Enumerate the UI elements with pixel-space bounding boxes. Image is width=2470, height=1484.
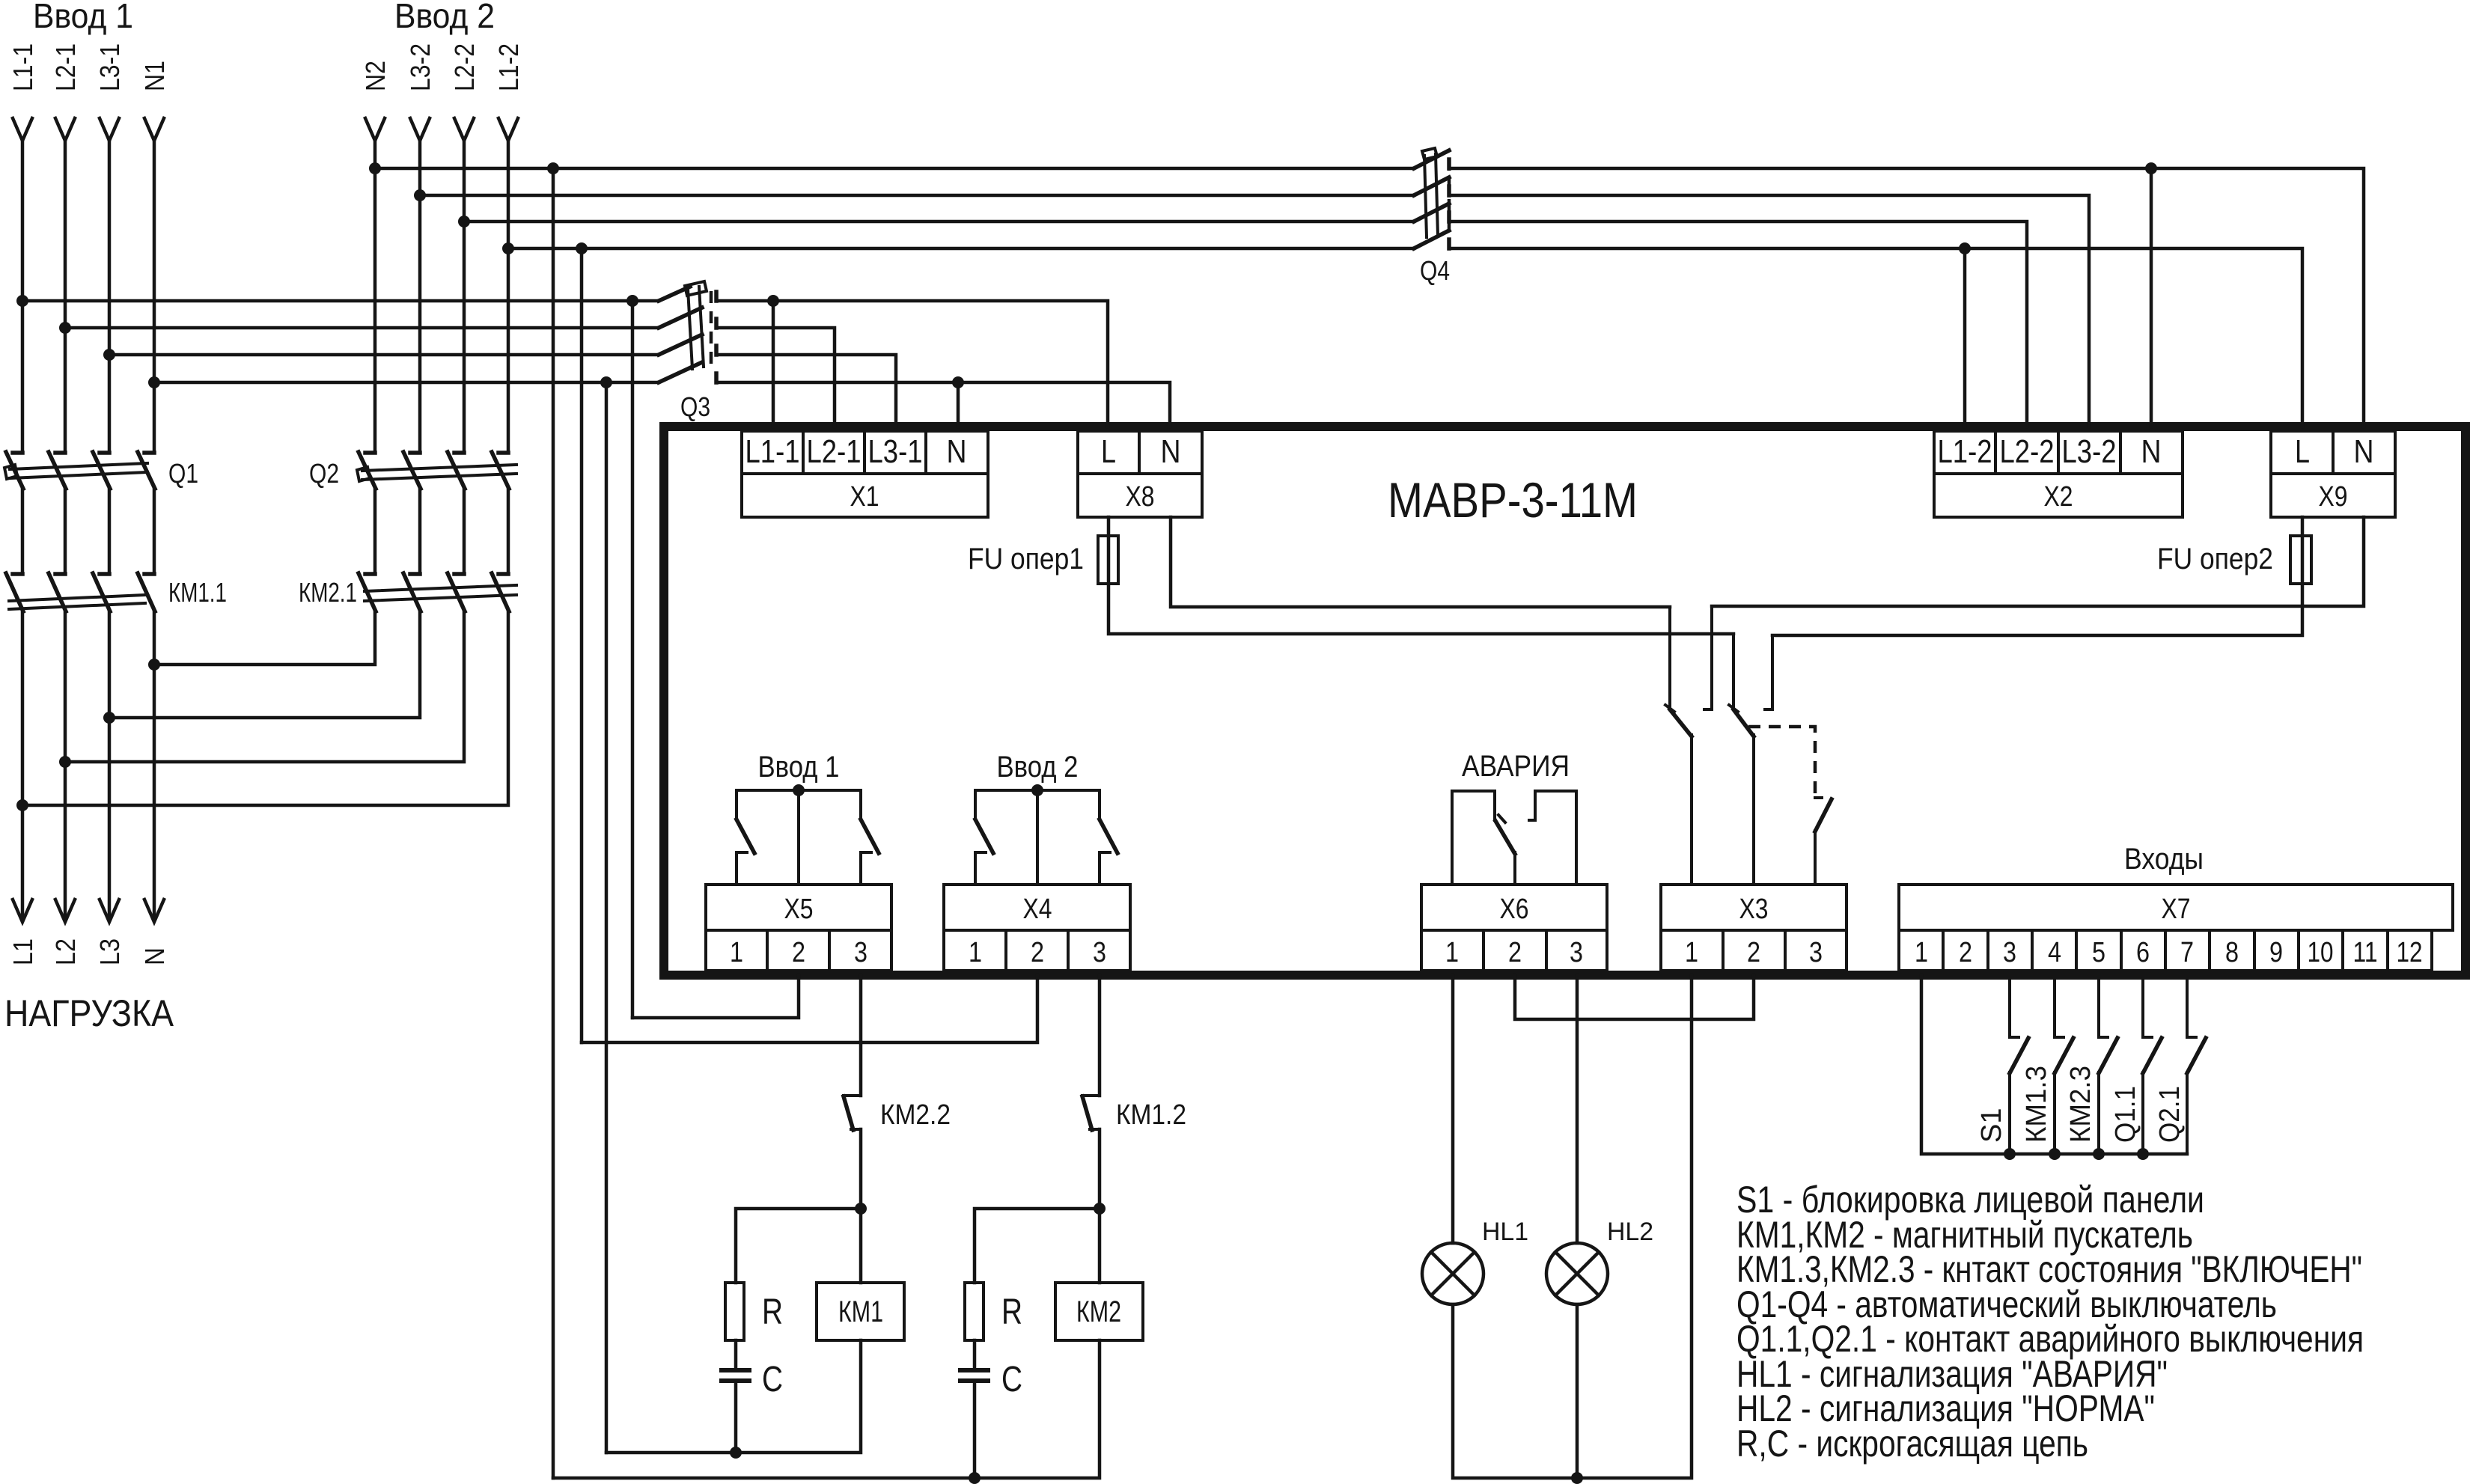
svg-text:1: 1 [1445, 937, 1459, 968]
svg-text:КМ1.3: КМ1.3 [2021, 1066, 2052, 1143]
svg-text:Q2: Q2 [309, 458, 339, 489]
svg-text:N: N [139, 947, 170, 965]
svg-text:2: 2 [1959, 937, 1972, 968]
svg-text:КМ1.2: КМ1.2 [1116, 1099, 1186, 1131]
svg-text:L: L [1101, 433, 1116, 470]
svg-text:Q2.1: Q2.1 [2154, 1086, 2186, 1143]
svg-text:7: 7 [2180, 937, 2194, 968]
svg-text:11: 11 [2353, 937, 2378, 968]
svg-text:L1-2: L1-2 [493, 43, 524, 91]
svg-text:1: 1 [969, 937, 982, 968]
svg-text:L3-1: L3-1 [868, 433, 923, 470]
svg-text:R: R [762, 1292, 783, 1332]
svg-text:X5: X5 [784, 894, 814, 925]
svg-text:L1-2: L1-2 [1938, 433, 1992, 470]
svg-text:HL1: HL1 [1482, 1218, 1528, 1246]
svg-text:КМ2.3: КМ2.3 [2065, 1066, 2097, 1143]
svg-text:Q1.1: Q1.1 [2110, 1086, 2141, 1143]
svg-text:5: 5 [2092, 937, 2105, 968]
svg-text:Q4: Q4 [1420, 255, 1450, 286]
svg-text:НАГРУЗКА: НАГРУЗКА [4, 992, 174, 1034]
svg-text:Ввод 1: Ввод 1 [758, 751, 840, 784]
svg-text:L: L [2295, 433, 2310, 470]
svg-text:3: 3 [2003, 937, 2016, 968]
svg-text:3: 3 [1093, 937, 1106, 968]
svg-text:L2-2: L2-2 [2000, 433, 2055, 470]
svg-text:L2-2: L2-2 [449, 43, 480, 91]
svg-text:Q1: Q1 [168, 458, 198, 489]
svg-text:1: 1 [1915, 937, 1928, 968]
svg-text:6: 6 [2136, 937, 2150, 968]
svg-text:C: C [762, 1360, 783, 1399]
svg-text:2: 2 [1508, 937, 1522, 968]
svg-text:КМ2: КМ2 [1076, 1295, 1121, 1328]
svg-text:L2-1: L2-1 [50, 43, 81, 91]
svg-text:L3-1: L3-1 [94, 43, 125, 91]
svg-text:N: N [1161, 433, 1181, 470]
svg-text:3: 3 [854, 937, 867, 968]
svg-text:2: 2 [1031, 937, 1044, 968]
svg-text:8: 8 [2225, 937, 2239, 968]
svg-text:N: N [947, 433, 967, 470]
svg-text:L1-1: L1-1 [745, 433, 800, 470]
svg-text:C: C [1001, 1360, 1022, 1399]
svg-text:КМ2.2: КМ2.2 [880, 1099, 951, 1131]
svg-text:N: N [2354, 433, 2374, 470]
svg-text:N1: N1 [139, 61, 170, 91]
svg-text:FU опер1: FU опер1 [968, 543, 1084, 575]
svg-text:R: R [1001, 1292, 1022, 1332]
svg-text:10: 10 [2308, 937, 2334, 968]
svg-text:КМ1.1: КМ1.1 [168, 577, 227, 608]
svg-text:9: 9 [2269, 937, 2283, 968]
svg-text:X3: X3 [1739, 894, 1769, 925]
svg-text:S1: S1 [1976, 1108, 2007, 1143]
svg-text:X4: X4 [1023, 894, 1052, 925]
svg-text:L3-2: L3-2 [405, 43, 436, 91]
svg-text:X8: X8 [1126, 481, 1155, 513]
svg-text:2: 2 [1747, 937, 1760, 968]
svg-text:L1: L1 [7, 938, 38, 965]
svg-text:Ввод 2: Ввод 2 [997, 751, 1079, 784]
svg-text:X7: X7 [2162, 894, 2191, 925]
svg-text:КМ2.1: КМ2.1 [299, 577, 357, 608]
svg-text:X1: X1 [850, 481, 879, 513]
svg-text:FU опер2: FU опер2 [2157, 543, 2273, 575]
svg-text:L3-2: L3-2 [2062, 433, 2117, 470]
svg-text:L3: L3 [94, 938, 125, 965]
svg-text:L2-1: L2-1 [807, 433, 862, 470]
svg-text:3: 3 [1809, 937, 1823, 968]
svg-text:МАВР-3-11М: МАВР-3-11М [1388, 472, 1638, 528]
svg-text:АВАРИЯ: АВАРИЯ [1462, 750, 1570, 783]
svg-text:N2: N2 [360, 61, 391, 91]
svg-text:R,C - искрогасящая цепь: R,C - искрогасящая цепь [1736, 1423, 2088, 1465]
svg-text:X9: X9 [2319, 481, 2348, 513]
svg-text:3: 3 [1570, 937, 1583, 968]
svg-text:X6: X6 [1500, 894, 1529, 925]
svg-text:КМ1: КМ1 [838, 1295, 883, 1328]
svg-text:1: 1 [1685, 937, 1698, 968]
svg-text:1: 1 [730, 937, 743, 968]
svg-text:L1-1: L1-1 [7, 43, 38, 91]
svg-text:Ввод 2: Ввод 2 [394, 0, 495, 35]
svg-text:X2: X2 [2044, 481, 2073, 513]
svg-text:Ввод 1: Ввод 1 [33, 0, 133, 35]
svg-text:HL2: HL2 [1607, 1218, 1653, 1246]
svg-text:L2: L2 [50, 938, 81, 965]
svg-text:N: N [2141, 433, 2162, 470]
svg-text:2: 2 [792, 937, 805, 968]
svg-text:4: 4 [2048, 937, 2061, 968]
svg-text:12: 12 [2397, 937, 2423, 968]
svg-text:Q3: Q3 [680, 391, 710, 422]
svg-text:Входы: Входы [2124, 843, 2204, 876]
